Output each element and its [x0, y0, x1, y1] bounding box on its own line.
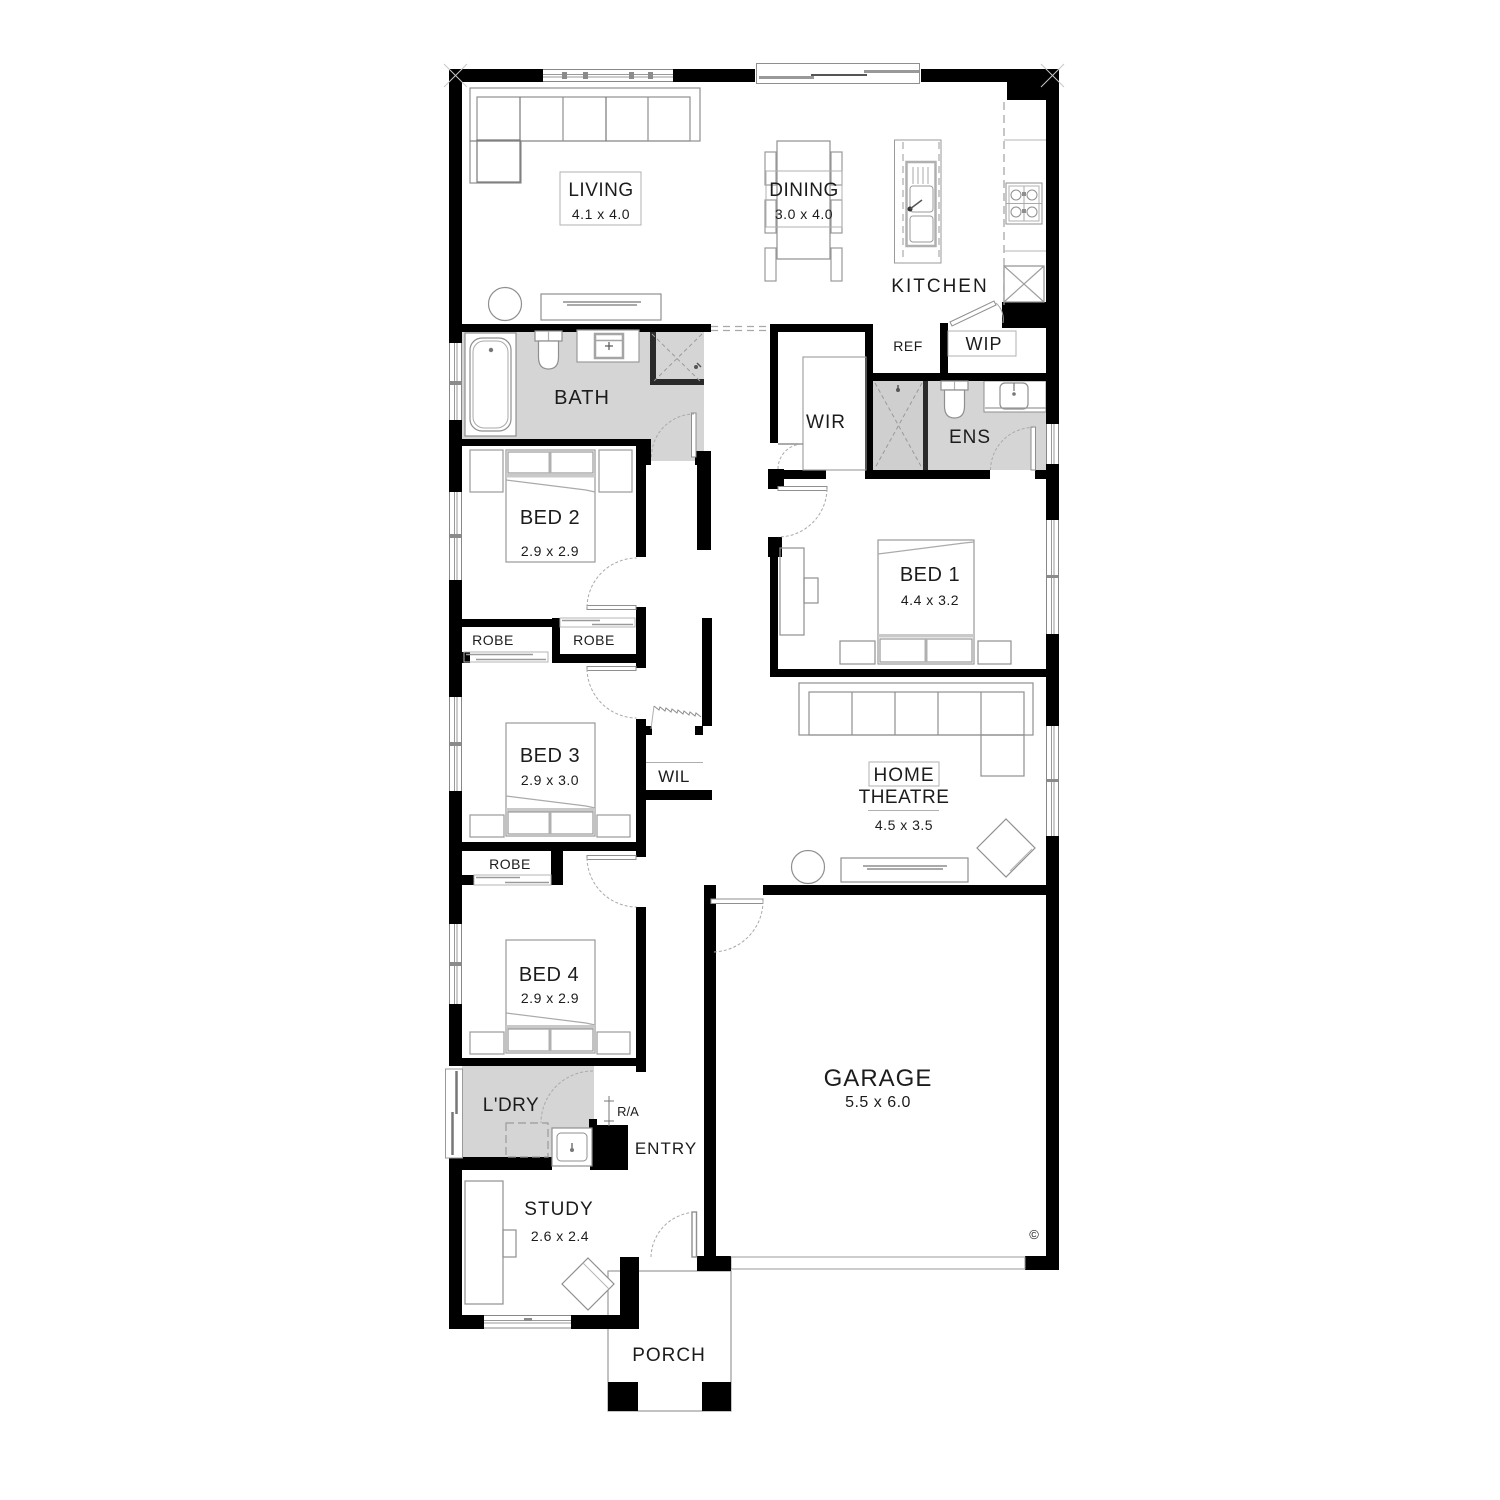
svg-text:THEATRE: THEATRE	[859, 787, 950, 808]
svg-text:ROBE: ROBE	[573, 632, 615, 648]
svg-text:5.5 x 6.0: 5.5 x 6.0	[845, 1094, 911, 1111]
svg-text:ENTRY: ENTRY	[635, 1139, 697, 1158]
svg-text:2.9 x 3.0: 2.9 x 3.0	[521, 772, 579, 788]
svg-text:3.0 x 4.0: 3.0 x 4.0	[775, 206, 833, 222]
svg-text:ROBE: ROBE	[489, 856, 531, 872]
svg-text:BED 4: BED 4	[519, 964, 579, 986]
svg-text:LIVING: LIVING	[568, 180, 633, 201]
svg-text:BATH: BATH	[554, 387, 610, 409]
svg-text:HOME: HOME	[874, 765, 935, 786]
svg-text:BED 1: BED 1	[900, 564, 960, 586]
svg-text:ENS: ENS	[949, 427, 991, 448]
svg-text:PORCH: PORCH	[632, 1345, 706, 1366]
svg-text:KITCHEN: KITCHEN	[891, 276, 988, 297]
svg-text:4.5 x 3.5: 4.5 x 3.5	[875, 817, 933, 833]
svg-text:BED 3: BED 3	[520, 745, 580, 767]
svg-text:4.4 x 3.2: 4.4 x 3.2	[901, 592, 959, 608]
svg-text:2.9 x 2.9: 2.9 x 2.9	[521, 543, 579, 559]
svg-text:WIP: WIP	[966, 334, 1003, 354]
svg-text:2.9 x 2.9: 2.9 x 2.9	[521, 990, 579, 1006]
svg-text:2.6 x 2.4: 2.6 x 2.4	[531, 1228, 589, 1244]
svg-text:4.1 x 4.0: 4.1 x 4.0	[572, 206, 630, 222]
svg-text:R/A: R/A	[617, 1104, 639, 1119]
svg-text:REF: REF	[893, 338, 923, 354]
svg-text:WIR: WIR	[806, 412, 846, 433]
svg-text:BED 2: BED 2	[520, 507, 580, 529]
svg-text:GARAGE: GARAGE	[824, 1065, 933, 1092]
svg-text:DINING: DINING	[769, 180, 839, 201]
svg-text:WIL: WIL	[658, 767, 690, 786]
svg-text:STUDY: STUDY	[524, 1199, 593, 1220]
svg-text:©: ©	[1029, 1227, 1039, 1242]
svg-text:L'DRY: L'DRY	[483, 1095, 539, 1116]
svg-text:ROBE: ROBE	[472, 632, 514, 648]
